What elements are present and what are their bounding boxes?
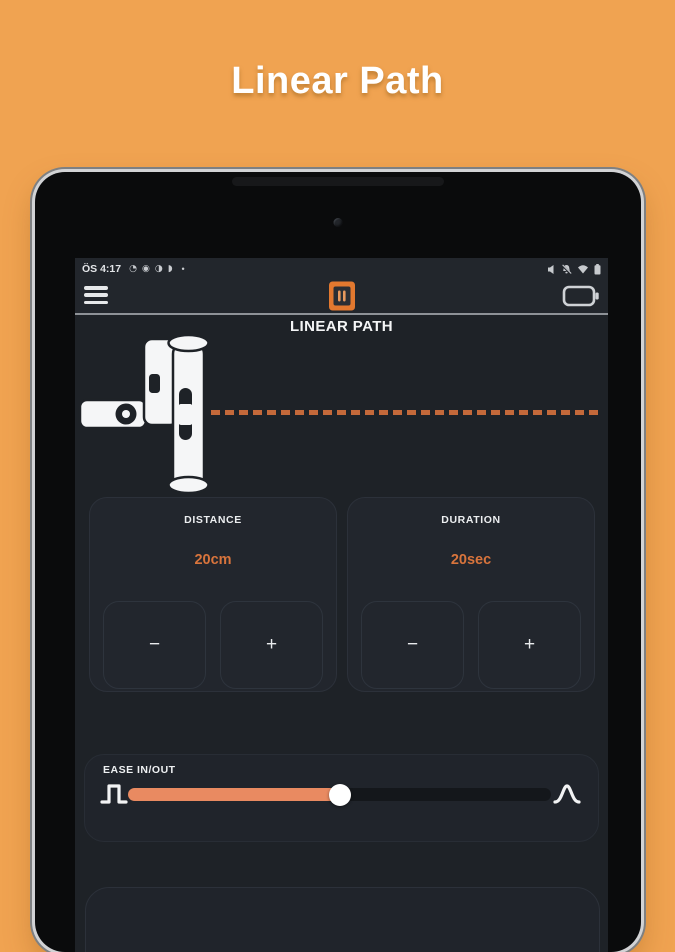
- device-battery-icon: [562, 284, 600, 313]
- notification-dot-icon: •: [181, 265, 184, 274]
- ease-card: EASE IN/OUT: [84, 754, 599, 842]
- alarm-icon: ◔: [129, 265, 137, 274]
- page-title: Linear Path: [0, 60, 675, 103]
- speaker-notch: [232, 177, 444, 186]
- duration-increment-button[interactable]: +: [478, 601, 581, 689]
- mute-icon: [547, 264, 556, 275]
- duration-decrement-button[interactable]: −: [361, 601, 464, 689]
- slider-device-illustration: [75, 330, 215, 505]
- duration-card: DURATION 20sec − +: [347, 497, 595, 692]
- distance-decrement-button[interactable]: −: [103, 601, 206, 689]
- distance-buttons: − +: [103, 601, 323, 689]
- cast-icon: ◉: [142, 265, 150, 274]
- app-logo-icon: [328, 281, 355, 316]
- app-bar-divider: [75, 313, 608, 315]
- wifi-icon: [577, 264, 589, 274]
- distance-value: 20cm: [90, 552, 336, 568]
- bell-curve-icon: [552, 782, 582, 811]
- duration-value: 20sec: [348, 552, 594, 568]
- ease-slider-thumb[interactable]: [329, 784, 351, 806]
- menu-icon-bar: [84, 286, 108, 290]
- notifications-off-icon: [561, 264, 572, 275]
- status-time: ÖS 4:17: [82, 263, 121, 275]
- tablet-frame: ÖS 4:17 ◔ ◉ ◑ ◗ •: [35, 172, 641, 952]
- menu-icon-bar: [84, 293, 108, 297]
- menu-button[interactable]: [84, 286, 108, 304]
- menu-icon-bar: [84, 301, 108, 305]
- status-bar: ÖS 4:17 ◔ ◉ ◑ ◗ •: [75, 258, 608, 280]
- data-saver-icon: ◗: [168, 265, 173, 274]
- duration-label: DURATION: [348, 514, 594, 526]
- ease-slider-fill: [128, 788, 340, 801]
- distance-increment-button[interactable]: +: [220, 601, 323, 689]
- square-wave-icon: [99, 782, 129, 811]
- dnd-icon: ◑: [155, 265, 163, 274]
- battery-icon: [594, 264, 601, 275]
- app-screen: ÖS 4:17 ◔ ◉ ◑ ◗ •: [75, 258, 608, 952]
- distance-label: DISTANCE: [90, 514, 336, 526]
- front-camera: [334, 218, 343, 227]
- bottom-panel: [85, 887, 600, 952]
- path-dashed-line: [211, 410, 603, 415]
- distance-card: DISTANCE 20cm − +: [89, 497, 337, 692]
- app-bar: [75, 280, 608, 313]
- ease-label: EASE IN/OUT: [103, 764, 176, 776]
- duration-buttons: − +: [361, 601, 581, 689]
- ease-slider[interactable]: [128, 788, 551, 801]
- status-bar-left: ÖS 4:17 ◔ ◉ ◑ ◗ •: [82, 263, 185, 275]
- status-bar-right: [547, 264, 601, 275]
